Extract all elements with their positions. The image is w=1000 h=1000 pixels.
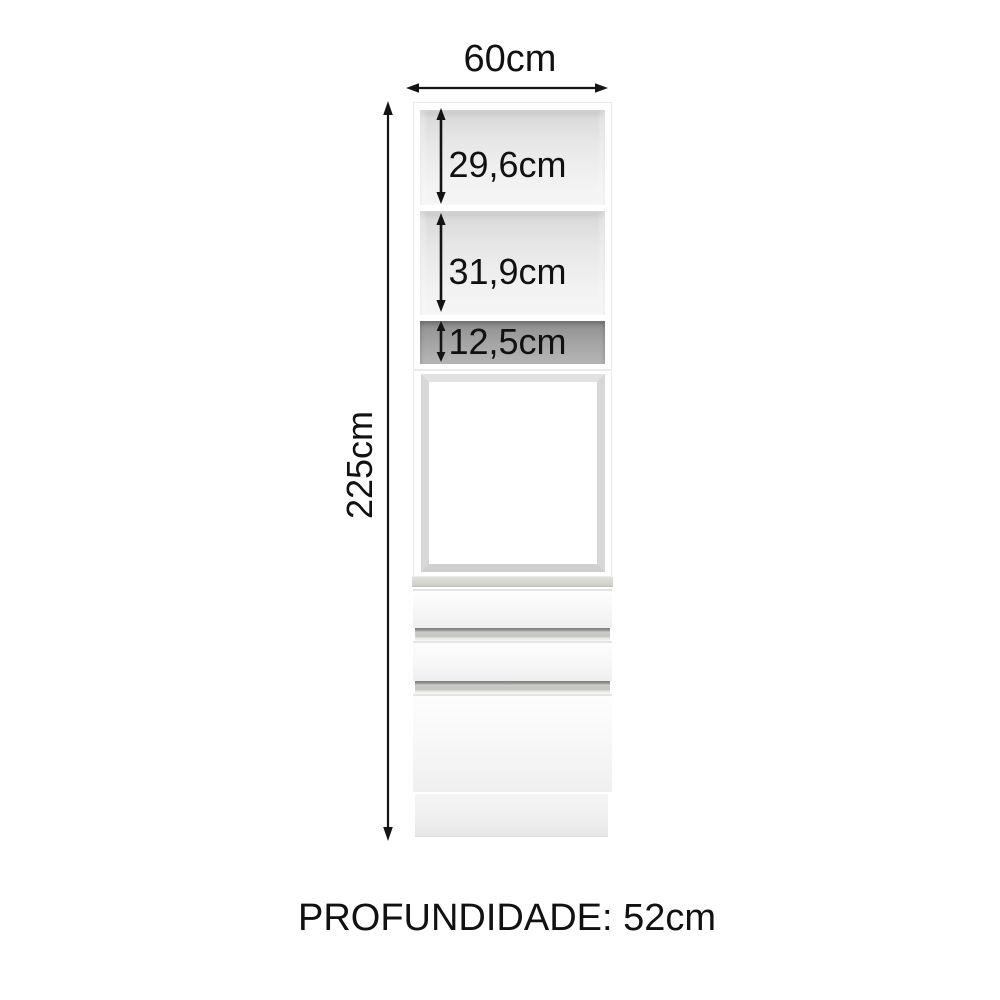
cabinet-dimension-diagram: 60cm 225cm 29,6cm 31,9cm 12,5cm PROFUNDI… xyxy=(0,0,1000,1000)
drawer-3 xyxy=(413,694,612,792)
plinth-base xyxy=(415,794,608,837)
countertop-strip xyxy=(412,577,613,587)
compartment-1-dimension-label: 29,6cm xyxy=(408,147,607,183)
height-dimension-arrow xyxy=(380,101,396,841)
height-dimension-label: 225cm xyxy=(341,405,379,525)
oven-cavity-section xyxy=(413,370,612,577)
width-dimension-label: 60cm xyxy=(413,40,607,78)
drawer-1 xyxy=(413,589,612,628)
depth-dimension-label: PROFUNDIDADE: 52cm xyxy=(257,899,757,937)
drawer-2 xyxy=(413,641,612,681)
drawer-handle-strip-1 xyxy=(415,628,610,641)
width-dimension-arrow xyxy=(406,80,608,96)
compartment-3-dimension-label: 12,5cm xyxy=(408,324,607,360)
drawer-handle-strip-2 xyxy=(415,681,610,694)
compartment-2-dimension-label: 31,9cm xyxy=(408,254,607,290)
oven-cavity-opening xyxy=(421,374,605,572)
